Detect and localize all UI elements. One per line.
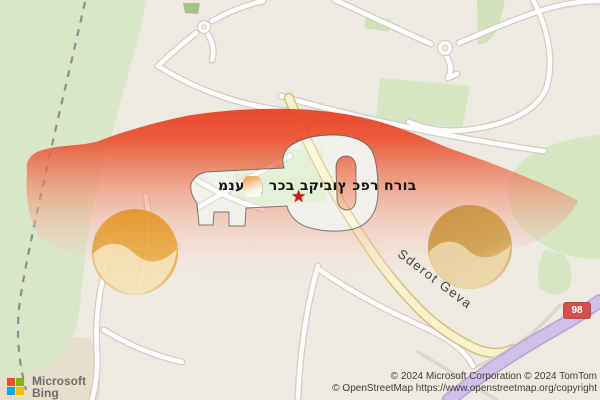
ms-square-yellow bbox=[16, 387, 24, 395]
ms-square-green bbox=[16, 378, 24, 386]
bing-maps-viewport: מנעולן רכב בקיבוץ כפר חרוב ★ Sderot Geva… bbox=[0, 0, 600, 400]
microsoft-logo-icon bbox=[7, 378, 24, 395]
ms-square-blue bbox=[7, 387, 15, 395]
car-wheel-left bbox=[92, 209, 178, 295]
ms-square-red bbox=[7, 378, 15, 386]
route-98-badge: 98 bbox=[563, 302, 591, 319]
attribution-line2[interactable]: © OpenStreetMap https://www.openstreetma… bbox=[332, 383, 597, 395]
attribution-line1: © 2024 Microsoft Corporation © 2024 TomT… bbox=[332, 371, 597, 383]
bing-text: Bing bbox=[32, 388, 86, 400]
bing-wordmark: Microsoft Bing bbox=[32, 376, 86, 399]
key-glyph-blob bbox=[243, 176, 262, 197]
location-star-icon[interactable]: ★ bbox=[291, 189, 306, 206]
bing-logo[interactable]: Microsoft Bing bbox=[7, 376, 86, 399]
map-attribution: © 2024 Microsoft Corporation © 2024 TomT… bbox=[332, 371, 597, 395]
